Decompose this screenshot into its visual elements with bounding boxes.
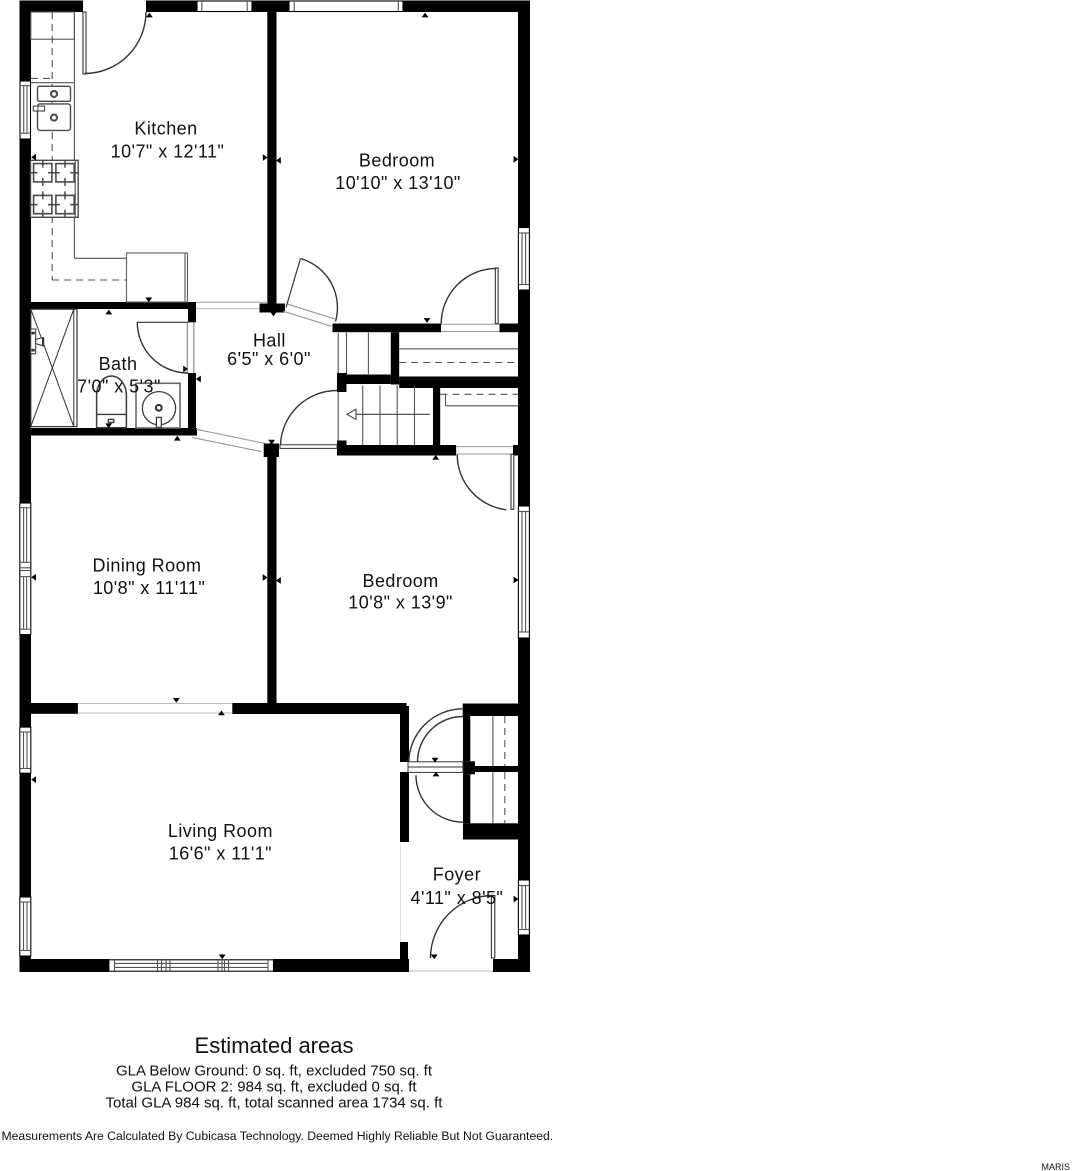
svg-text:Kitchen: Kitchen — [134, 119, 197, 139]
svg-text:4'11" x 8'5": 4'11" x 8'5" — [411, 888, 504, 908]
svg-text:10'7" x 12'11": 10'7" x 12'11" — [111, 142, 225, 162]
svg-text:Hall: Hall — [253, 331, 286, 351]
svg-text:Total GLA 984 sq. ft, total sc: Total GLA 984 sq. ft, total scanned area… — [106, 1095, 444, 1112]
svg-text:Measurements Are Calculated By: Measurements Are Calculated By Cubicasa … — [2, 1129, 554, 1143]
svg-text:Bath: Bath — [99, 354, 138, 374]
svg-text:6'5" x 6'0": 6'5" x 6'0" — [227, 349, 311, 369]
svg-text:Living Room: Living Room — [168, 821, 273, 841]
svg-text:Foyer: Foyer — [433, 865, 481, 885]
svg-text:Bedroom: Bedroom — [359, 151, 435, 171]
svg-text:10'8" x 13'9": 10'8" x 13'9" — [348, 593, 453, 613]
svg-text:GLA Below Ground: 0 sq. ft, ex: GLA Below Ground: 0 sq. ft, excluded 750… — [116, 1063, 433, 1080]
svg-text:16'6" x 11'1": 16'6" x 11'1" — [169, 844, 272, 864]
svg-text:GLA FLOOR 2: 984 sq. ft, exclu: GLA FLOOR 2: 984 sq. ft, excluded 0 sq. … — [131, 1079, 417, 1096]
svg-text:Estimated areas: Estimated areas — [195, 1033, 354, 1058]
svg-text:MARIS: MARIS — [1041, 1162, 1070, 1171]
svg-text:10'8" x 11'11": 10'8" x 11'11" — [93, 578, 205, 598]
svg-text:Bedroom: Bedroom — [363, 571, 439, 591]
svg-text:7'0" x 5'3": 7'0" x 5'3" — [77, 377, 161, 397]
svg-text:Dining Room: Dining Room — [93, 556, 202, 576]
svg-text:10'10" x 13'10": 10'10" x 13'10" — [335, 173, 461, 193]
